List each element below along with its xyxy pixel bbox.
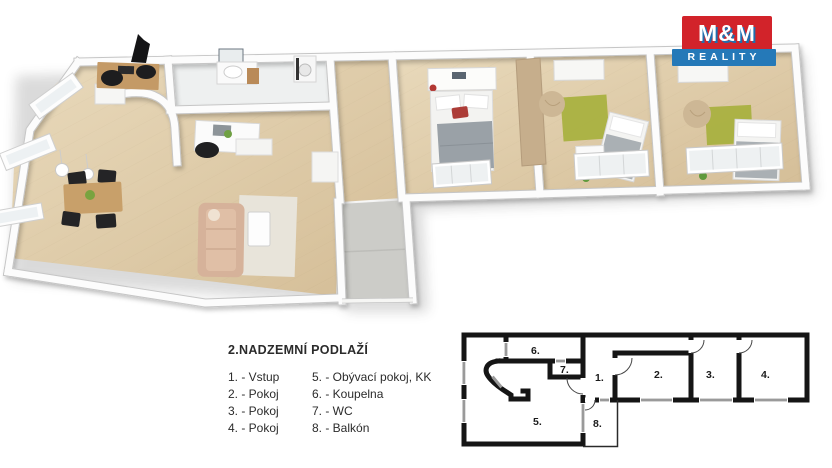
floorplan-image: M&M REALITY 2.NADZEMNÍ PODLAŽÍ 1. - Vstu… bbox=[0, 0, 832, 468]
pendant-lamp-icon bbox=[56, 164, 69, 177]
legend-item: 1. - Vstup bbox=[228, 369, 279, 386]
floorplan-2d-schematic: 1. 2. 3. 4. 5. 6. 7. 8. bbox=[460, 330, 812, 452]
room-number-label: 8. bbox=[593, 418, 602, 430]
mm-reality-logo: M&M REALITY bbox=[672, 16, 776, 66]
room-legend-col1: 1. - Vstup 2. - Pokoj 3. - Pokoj 4. - Po… bbox=[228, 369, 279, 437]
logo-mm-box: M&M bbox=[682, 16, 772, 51]
room-number-label: 4. bbox=[761, 369, 770, 381]
legend-item: 4. - Pokoj bbox=[228, 420, 279, 437]
hall-cabinet bbox=[312, 152, 338, 182]
room-number-label: 7. bbox=[560, 364, 569, 376]
legend-item: 7. - WC bbox=[312, 403, 431, 420]
logo-reality-bar: REALITY bbox=[672, 49, 776, 66]
room-number-label: 6. bbox=[531, 345, 540, 357]
legend-item: 5. - Obývací pokoj, KK bbox=[312, 369, 431, 386]
balcony-railing bbox=[342, 300, 413, 301]
room-number-label: 3. bbox=[706, 369, 715, 381]
floor-title: 2.NADZEMNÍ PODLAŽÍ bbox=[228, 343, 368, 357]
room-number-label: 2. bbox=[654, 369, 663, 381]
legend-item: 8. - Balkón bbox=[312, 420, 431, 437]
logo-mm-text: M&M bbox=[698, 22, 756, 45]
curved-wall bbox=[486, 361, 528, 399]
coffee-table bbox=[248, 212, 270, 246]
legend-item: 6. - Koupelna bbox=[312, 386, 431, 403]
bean-bag bbox=[683, 100, 711, 128]
bean-bag bbox=[539, 91, 565, 117]
room-number-labels: 1. 2. 3. 4. 5. 6. 7. 8. bbox=[531, 345, 770, 430]
legend-item: 3. - Pokoj bbox=[228, 403, 279, 420]
legend-item: 2. - Pokoj bbox=[228, 386, 279, 403]
room-legend-col2: 5. - Obývací pokoj, KK 6. - Koupelna 7. … bbox=[312, 369, 431, 437]
room-number-label: 5. bbox=[533, 416, 542, 428]
room-number-label: 1. bbox=[595, 372, 604, 384]
logo-reality-text: REALITY bbox=[688, 52, 761, 63]
